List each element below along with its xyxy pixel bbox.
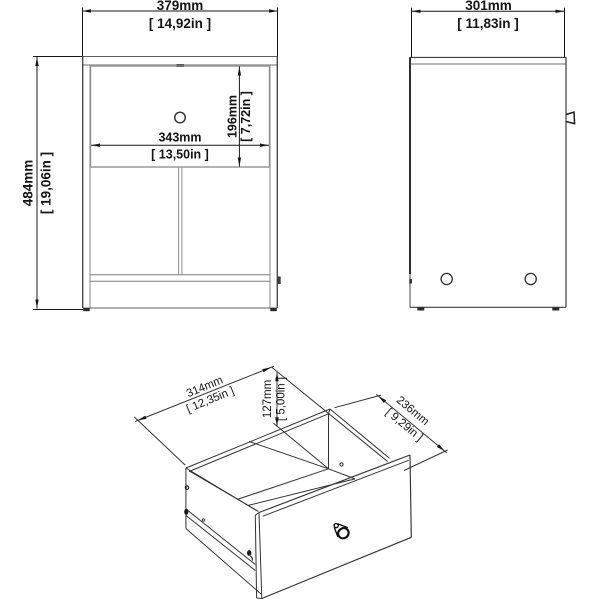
svg-text:[ 14,92in ]: [ 14,92in ] — [149, 16, 211, 31]
svg-text:[ 11,83in ]: [ 11,83in ] — [457, 16, 519, 31]
svg-text:[ 7,72in ]: [ 7,72in ] — [239, 91, 253, 142]
svg-text:301mm: 301mm — [465, 0, 512, 13]
svg-text:127mm: 127mm — [262, 380, 274, 418]
svg-text:484mm: 484mm — [21, 160, 36, 207]
svg-text:[ 19,06in ]: [ 19,06in ] — [39, 152, 54, 214]
svg-text:379mm: 379mm — [157, 0, 204, 13]
svg-text:343mm: 343mm — [158, 131, 201, 145]
svg-text:[ 5,00in ]: [ 5,00in ] — [276, 377, 288, 421]
svg-text:196mm: 196mm — [226, 95, 240, 138]
svg-text:[ 13,50in ]: [ 13,50in ] — [151, 148, 209, 162]
